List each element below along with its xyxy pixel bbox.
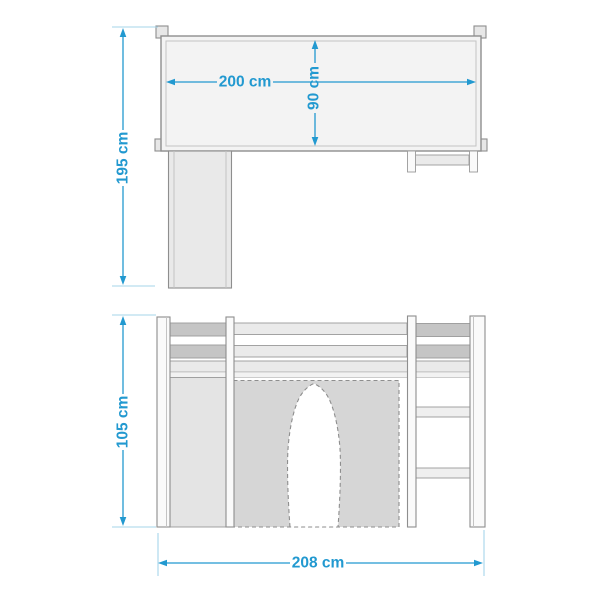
bed-post-inner-left (226, 317, 234, 527)
ladder-stile (408, 316, 417, 527)
dimension-label-90cm: 90 cm (306, 66, 323, 110)
guard-rail-middle (234, 346, 407, 358)
arrow-down-icon (120, 276, 127, 285)
dimension-label-195cm: 195 cm (115, 132, 132, 185)
bed-post-right (470, 316, 485, 527)
ladder-rung-second (416, 345, 470, 358)
bed-platform-edge (170, 372, 470, 378)
dimension-diagram-page: 195 cm 200 cm 90 cm (0, 0, 600, 600)
top-view-drawing (155, 26, 487, 288)
arrow-up-icon (120, 28, 127, 37)
ladder-rung-top (416, 324, 470, 337)
head-rail-top (170, 323, 226, 336)
arrow-up-icon (120, 316, 127, 325)
ladder-rung-fourth (416, 468, 470, 478)
arrow-right-icon (474, 560, 483, 567)
arrow-left-icon (158, 560, 167, 567)
ladder-plan-rail (415, 155, 469, 165)
ladder-rung-third (416, 407, 470, 417)
loft-bed-dimension-drawing: 195 cm 200 cm 90 cm (0, 0, 600, 600)
ladder-plan-stile-left (408, 151, 416, 172)
side-panel-front (170, 378, 226, 528)
dimension-label-200cm: 200 cm (219, 74, 272, 91)
dimension-208cm: 208 cm (158, 530, 484, 576)
ladder-plan-stile-right (470, 151, 478, 172)
dimension-195cm: 195 cm (112, 27, 158, 286)
bed-platform-rail (170, 361, 470, 372)
side-panel-plan (169, 151, 232, 288)
dimension-label-105cm: 105 cm (115, 396, 132, 449)
head-rail-bottom (170, 345, 226, 358)
front-view-drawing (157, 316, 485, 527)
guard-rail-top (234, 323, 407, 335)
bed-post-left (157, 317, 170, 527)
dimension-105cm: 105 cm (112, 315, 156, 527)
dimension-label-208cm: 208 cm (292, 555, 345, 572)
arrow-down-icon (120, 517, 127, 526)
